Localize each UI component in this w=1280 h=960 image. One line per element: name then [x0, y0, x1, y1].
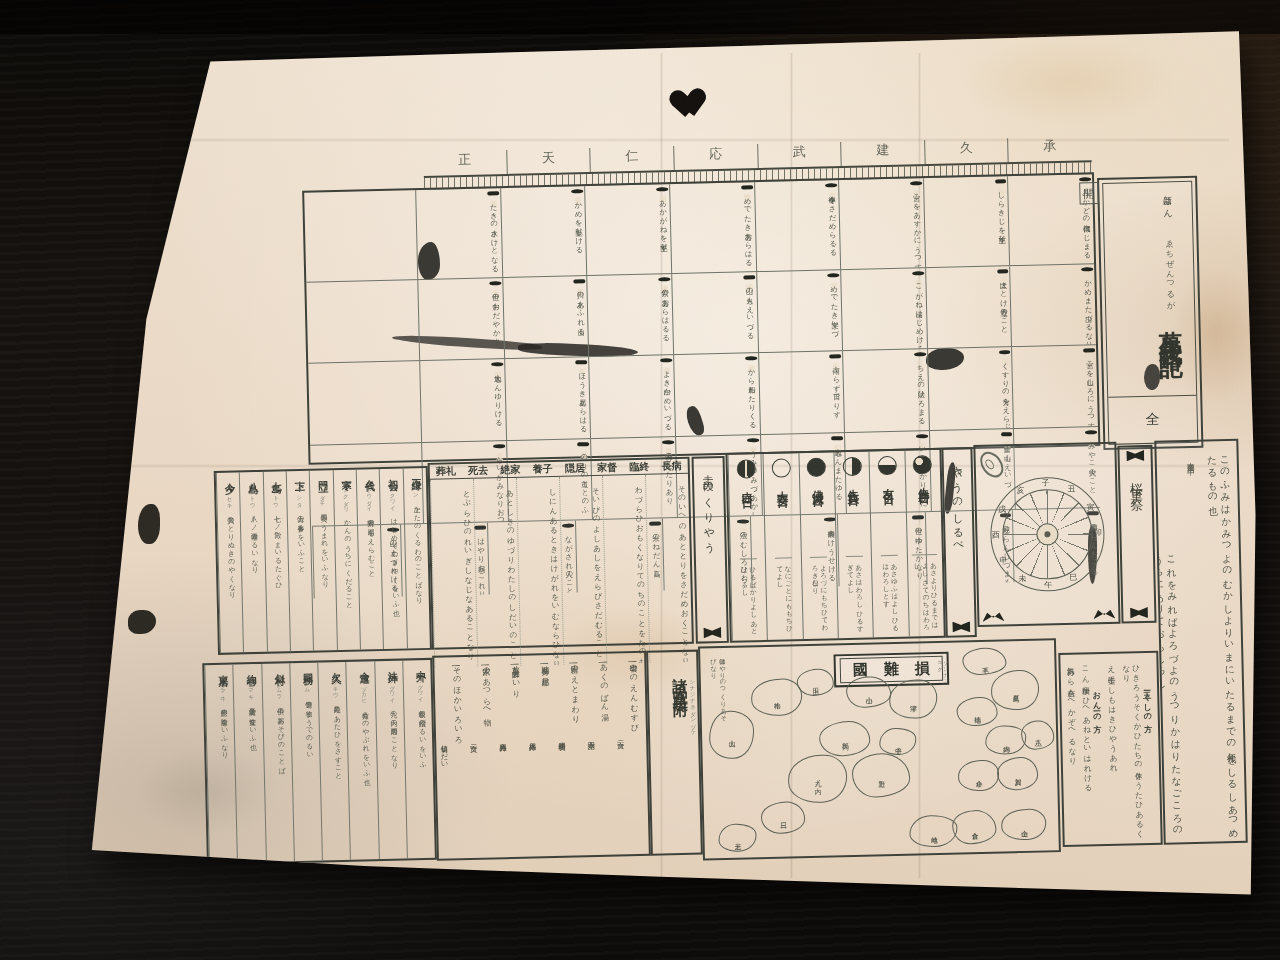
era-seal: 斉衡 [491, 362, 503, 366]
wheel-ring-char: 卯 [1093, 528, 1103, 538]
terms-body-column: あとしきのゆづりわたしのしだいのこと [473, 478, 520, 667]
wheel-ring-char: 丑 [1066, 484, 1076, 494]
wheel-panel: 子丑寅卯辰巳午未申酉戌亥 [973, 442, 1120, 627]
term-body: 筆笥の物まうでのるい [304, 696, 313, 756]
era-header-char: 承 [1008, 136, 1091, 162]
era-header-char: 武 [758, 142, 842, 168]
grid-cell-blank [308, 361, 421, 444]
term-gloss: チウグワイ [417, 668, 424, 699]
grid-cell: 慶雲めでたき雲あらはる [669, 182, 756, 273]
rokuyo-column: 友引日あさゆふはよし ひるはわろしとす [869, 451, 909, 638]
right-column-text: このふみはかみつよのむかしよりいまにいたるまでの年代をしるしあつめたるもの也本道… [1154, 439, 1247, 845]
term-gloss: フエン [413, 476, 419, 495]
term-gloss: シチトウ [273, 479, 280, 504]
glossary-column: 中外チウグワイ新板の摺絵のるいをいふ [402, 660, 435, 859]
term-body: 仕方ゐのやぶれをいふ也 [361, 707, 371, 775]
term-gloss: カネヅカヒ [361, 669, 368, 700]
title-panel: 開 新はん ゑちぜんつるが 萬年代略記 全 [1097, 176, 1203, 450]
era-seal: 朱鳥 [910, 181, 922, 185]
rokuyo-name: 佛滅日 [809, 481, 826, 555]
rokuyo-name: 大安日 [774, 481, 791, 555]
rokuyo-symbol-icon [772, 458, 791, 477]
province-blob: 九ノ内 [788, 754, 848, 804]
province-blob: 夏島 [991, 670, 1040, 711]
wheel-ring-char: 亥 [1015, 486, 1025, 496]
era-seal: 宝字 [827, 273, 839, 277]
price-item: 一そのほかいろいろ値切しだい [436, 661, 470, 855]
corner-crown-icon [982, 608, 1004, 622]
side-note-line: 気行あら六合をへかぞへるなり [1065, 661, 1079, 845]
side-note-block: 玉ーくしの方ひきろうそくかひたちの体をうたひあるくなりえ手金にしもはきひやうあれ… [1058, 651, 1163, 847]
glossary-top: 不縁フエン上かたのくるわのことばなり初会シヨクワイはじめてのきやくをいふ也名代ミ… [214, 466, 432, 655]
grid-cell: 嘉祥よき白かめいづる [588, 355, 675, 438]
province-blob: 金山 [1001, 808, 1046, 840]
era-header-char: 仁 [590, 146, 674, 172]
term-gloss: シヨクワイ [390, 477, 397, 508]
era-seal: 大化 [1079, 177, 1091, 181]
era-header-char: 正 [423, 150, 507, 176]
terms-body-column: しにんあるときはけがれをいむならひなり [516, 477, 563, 666]
rokuyo-symbol-icon [736, 459, 755, 478]
grid-cell-blank [304, 190, 417, 282]
printed-area: 承久建武応仁天正 大化みかどの御代はじまる白雉しらきじを献上す朱鳥宮こをあすかに… [168, 129, 1255, 889]
term-gloss: コクム [304, 671, 310, 690]
junidan-label-column: 十二段のくりやう [692, 456, 729, 644]
province-blob: 郡内 [819, 720, 871, 757]
era-seal: 神護 [743, 275, 755, 279]
rokuyo-desc: あさよりひるまではよし さてのちはわろし [912, 554, 939, 631]
term-head: 上下 [294, 473, 305, 477]
province-blob: 地崎 [909, 815, 958, 848]
grid-cell: 宝亀川の水あふれ出る [502, 276, 588, 358]
rokuyo-desc: あさはわろし ひるすぎてよし [846, 556, 865, 632]
wheel-ring-char: 巳 [1068, 573, 1078, 583]
term-head: 似村 [274, 665, 285, 669]
term-chip: 隠居 [565, 461, 585, 475]
era-seal: 延長 [493, 444, 505, 448]
term-chip: 長病 [661, 459, 681, 473]
right-column-line: 本道四居中 [1185, 450, 1204, 842]
rokuyo-column: 先勝日あさよりひるまではよし さてのちはわろし [904, 450, 944, 637]
rokuyo-name: 友引日 [880, 479, 897, 553]
side-note-line: え手金にしもはきひやうあれ [1106, 660, 1120, 844]
grid-cell: 景雲紫の雲あらはるる [586, 274, 672, 356]
term-body: 夢想の陰変をいふなり [219, 704, 228, 756]
wheel-ring-char: 辰 [1087, 554, 1097, 564]
grid-cell: 延暦宮こを山しろにうつす [1011, 345, 1098, 428]
terms-body-column: そのいへのあととりをさだめおくことなり [645, 474, 692, 663]
bowtie-marker-icon [703, 627, 721, 638]
rokuyo-column: 佛滅日よろづにもちひてわろき日なり [798, 452, 838, 639]
gunsai-label-column: 桜軍祭 [1117, 445, 1156, 624]
era-seal: 勝宝 [912, 271, 924, 275]
term-gloss: コンセキ [226, 481, 233, 506]
price-item: 一家吉のえとまわり墨夜緒切 [554, 658, 588, 852]
price-item: 一大家のあつらへ物二百文 [466, 660, 500, 854]
era-seal: 和銅 [656, 187, 668, 191]
term-body: 九の内の間居のことなり [389, 706, 398, 766]
era-seal: 景雲 [658, 277, 670, 281]
shohin-label-column: 諸品直段附 シナジナネダンヅケ [646, 650, 703, 856]
era-seal: 貞観 [1001, 432, 1013, 436]
term-head: 中外 [415, 662, 426, 666]
terms-body-column: そいびのよしあしをえらびさだむること [559, 476, 606, 665]
terms-block: 長病臨終家督隠居養子絶家死去葬礼 そのいへのあととりをさだめおくことなりわづらひ… [428, 457, 694, 650]
term-head: 初会 [387, 471, 398, 475]
wheel-ring-char: 戌 [997, 505, 1007, 515]
glossary-column: 不縁フエン上かたのくるわのことばなり [402, 468, 430, 648]
term-body: 死足のあたひをさすこと [332, 701, 342, 777]
grid-cell: 霊亀かめを献上しける [500, 186, 587, 277]
province-blob: 綿内 [985, 725, 1027, 755]
foxing-stain [960, 36, 1180, 126]
item-text: 出雲やのえんむすび [628, 657, 639, 728]
era-seal: 仁寿 [576, 360, 588, 364]
title-prefix: 新はん [1162, 188, 1173, 215]
rokuyo-symbol-icon [807, 458, 826, 477]
province-blob: 松本 [750, 678, 802, 717]
province-blob: 谷中 [879, 727, 917, 755]
rokuyo-column: 赤口日ひるばかりよし あとはわろし [728, 454, 768, 641]
era-seal: 元慶 [916, 434, 928, 438]
rokuyo-guide-column: 六やうのしるべ [941, 447, 976, 638]
grid-cell: 勝宝こがね出はじめける [840, 268, 926, 350]
rokuyo-guide-label: 六やうのしるべ [950, 449, 968, 618]
paper-wrap: 承久建武応仁天正 大化みかどの御代はじまる白雉しらきじを献上す朱鳥宮こをあすかに… [80, 26, 1265, 914]
term-gloss: ハチトウ [250, 480, 257, 505]
wheel-ring-char: 子 [1041, 478, 1051, 488]
era-seal: 宝亀 [574, 279, 586, 283]
province-blob: 三日 [760, 802, 805, 834]
province-blob: 小山 [846, 676, 891, 708]
era-header-char: 応 [674, 144, 758, 170]
grid-cell: 斉衡大地しんゆりける [419, 359, 506, 442]
term-body: かんのうちにくだること [343, 515, 353, 606]
era-seal: 延喜 [578, 442, 590, 446]
term-head: 今夕 [224, 474, 235, 478]
rokuyo-symbol-icon [913, 455, 932, 474]
grid-cell: 弘仁ちえの法ひろまる [842, 349, 929, 432]
term-body: はじめてのきやくをいふ也 [389, 514, 399, 606]
term-body: 又貝のとりぬきのやくなり [226, 512, 236, 596]
term-chip: 家督 [597, 460, 617, 474]
terms-body-column: とぶらひのれいぎしなじなあることなり [430, 479, 477, 668]
item-text: そのほかいろいろ [452, 661, 463, 740]
province-label: 九ノ内 [812, 775, 822, 783]
era-seal: 大同 [999, 350, 1011, 354]
wheel-ring-char: 未 [1017, 574, 1027, 584]
grid-cell: 宝字めでたき文字いづ [756, 270, 842, 352]
rokuyo-symbol-icon [842, 457, 861, 476]
term-gloss: ケツキウ [333, 670, 340, 695]
gunsai-label: 桜軍祭 [1126, 464, 1147, 604]
rokuyo-symbol-icon [878, 456, 897, 475]
era-seal: 慶雲 [741, 185, 753, 189]
term-chip: 絶家 [500, 463, 520, 477]
term-head: 金遣 [359, 663, 370, 667]
grid-cell: 白雉しらきじを献上す [923, 176, 1010, 267]
era-seal: 天応 [489, 281, 501, 285]
term-chip: 死去 [468, 463, 488, 477]
term-gloss: カンクダリ [343, 478, 350, 509]
rokuyo-column: 大安日なにごとにももちひてよし [763, 453, 803, 640]
term-gloss: カドダチ [320, 478, 327, 503]
province-blob: 八王 [1020, 720, 1055, 750]
item-text: 八百屋大師まいり [511, 660, 521, 695]
province-blob: 若土 [718, 824, 756, 852]
term-head: 法外 [387, 663, 398, 667]
grid-cell: 養老たきの水さけとなる [415, 188, 502, 279]
era-header-char: 久 [925, 138, 1009, 164]
era-grid: 大化みかどの御代はじまる白雉しらきじを献上す朱鳥宮こをあすかにうつす大宝律令をさ… [302, 172, 1100, 465]
heart-wormhole [675, 88, 712, 121]
rokuyo-desc: なにごとにももちひてよし [775, 557, 794, 633]
item-text: 家吉のえとまわり [569, 658, 579, 720]
corner-crown-icon [1093, 606, 1115, 620]
era-seal: 仁和 [831, 436, 843, 440]
grid-cell: 仁寿ほうき星あらはる [504, 357, 591, 440]
term-body: 子供の郭あそびのことば [276, 702, 286, 770]
term-head: 約巻 [246, 666, 257, 670]
rokuyo-name: 赤口日 [739, 482, 756, 556]
grid-cell: 神護山の火もえいづる [671, 272, 757, 354]
grid-cell: 承和から船わたりくる [673, 353, 760, 436]
volume-label: 全 [1108, 395, 1197, 444]
rokuyo-desc: よろづにもちひてわろき日なり [810, 557, 829, 633]
grid-cell: 和銅あかがねを献上す [584, 184, 671, 275]
term-head: 八島 [248, 474, 259, 478]
term-body: 獨美のうまれをいふなり [319, 509, 329, 585]
province-blob: 宇津 [888, 679, 937, 720]
term-body: 憂実足の性変をいふ也 [248, 703, 257, 739]
era-seal: 天平 [997, 269, 1009, 273]
bowtie-marker-icon [952, 621, 970, 632]
wheel-ring-char: 酉 [991, 530, 1001, 540]
terms-body-column: わづらひおもくなりてのちのことをたのむ [602, 475, 649, 664]
term-body: 上方の客参るをいふこと [296, 510, 305, 570]
era-seal: 大宝 [825, 183, 837, 187]
era-seal: 天安 [1085, 430, 1097, 434]
title-text: 新はん ゑちぜんつるが 萬年代略記 [1103, 182, 1196, 397]
era-seal: 天長 [829, 354, 841, 358]
term-head: 寒下 [341, 472, 352, 476]
wheel-ring-char: 申 [998, 556, 1008, 566]
price-item: 一出雲やのえんむすび二百文 [613, 657, 647, 851]
item-text: あくのばん湯 [599, 658, 609, 709]
term-body: 八トノ過塞のるいなり [249, 511, 258, 570]
rokuyo-panel: 先勝日あさよりひるまではよし さてのちはわろし友引日あさゆふはよし ひるはわろし… [725, 448, 945, 643]
wheel-ring-char: 午 [1043, 580, 1053, 590]
term-chip: 臨終 [629, 460, 649, 474]
province-blob: 大山 [709, 710, 755, 759]
grid-cell: 神亀かめまた出づるなり [1009, 264, 1095, 346]
province-blob: 田上 [796, 669, 834, 697]
paper-sheet: 承久建武応仁天正 大化みかどの御代はじまる白雉しらきじを献上す朱鳥宮こをあすかに… [80, 26, 1265, 914]
term-body: 上かたのくるわのことばなり [412, 501, 422, 601]
shohin-gloss: シナジナネダンヅケ [690, 676, 698, 732]
grid-cell: 天応世の中おだやか也 [417, 278, 503, 360]
wheel-ring-char: 寅 [1085, 503, 1095, 513]
item-text: 地面持を旦那に [540, 659, 550, 684]
junidan-label: 十二段のくりやう [701, 458, 719, 624]
grid-cell: 大同くすりの方をえらぶ [927, 347, 1014, 430]
price-item: 一八百屋大師まいり格外入用 [495, 660, 529, 854]
title-inner: 新はん ゑちぜんつるが 萬年代略記 全 [1102, 181, 1198, 445]
price-item: 一あくのばん湯六十四文 [583, 658, 617, 852]
era-seal: 弘仁 [914, 352, 926, 356]
grid-cell: 大宝律令をさだめらるる [754, 180, 841, 271]
term-gloss: ヤクマキ [248, 672, 255, 697]
province-blob: 下毛 [962, 648, 1007, 676]
ink-blot [128, 610, 156, 634]
terms-body: そのいへのあととりをさだめおくことなりわづらひおもくなりてのちのことをたのむそい… [430, 474, 692, 668]
ink-blot [138, 504, 160, 544]
rokuyo-desc: あさゆふはよし ひるはわろしとす [881, 555, 900, 631]
era-seal: 神亀 [1081, 267, 1093, 271]
era-seal: 養老 [487, 191, 499, 195]
term-gloss: ニタムラ [276, 671, 283, 696]
province-blob: 合倉 [952, 810, 997, 845]
term-head: 国務 [302, 665, 313, 669]
price-item: 一地面持を旦那に格外入用 [525, 659, 559, 853]
term-chip: 葬礼 [436, 464, 456, 478]
rokuyo-name: 先負日 [845, 480, 862, 554]
rokuyo-column: 先負日あさはわろし ひるすぎてよし [833, 452, 873, 639]
term-gloss: ウヘシタ [296, 479, 303, 504]
era-seal: 寛平 [747, 438, 759, 442]
corner-char: 開 [1079, 182, 1099, 204]
title-main: 萬年代略記 [1157, 312, 1185, 343]
map-title-char: 難 [884, 660, 899, 679]
era-seal: 霊亀 [572, 189, 584, 193]
photo-stage: 承久建武応仁天正 大化みかどの御代はじまる白雉しらきじを献上す朱鳥宮こをあすかに… [0, 0, 1280, 960]
province-blob: 上野 [851, 753, 911, 798]
bowtie-marker-icon [1126, 450, 1144, 461]
era-seal: 白雉 [995, 179, 1007, 183]
rokuyo-name: 先勝日 [915, 478, 932, 552]
term-head: 名代 [364, 471, 375, 475]
era-seal: 昌泰 [662, 440, 674, 444]
map-title-furigana: ソンナンコク [937, 658, 950, 683]
term-head: 門立 [317, 472, 328, 476]
province-blob: 加賀 [996, 756, 1038, 790]
bowtie-marker-icon [1130, 607, 1148, 618]
era-header-char: 建 [841, 140, 925, 166]
glossary-bottom: 中外チウグワイ新板の摺絵のるいをいふ法外ハフグワイ九の内の間居のことなり金遣カネ… [202, 658, 437, 865]
term-head: 欠久 [331, 664, 342, 668]
shohin-label: 諸品直段附 [669, 666, 689, 696]
rokuyo-desc: ひるばかりよし あとはわろし [740, 558, 759, 634]
price-panel: 一出雲やのえんむすび二百文一あくのばん湯六十四文一家吉のえとまわり墨夜緒切一地面… [432, 651, 651, 861]
right-column-line: このふみはかみつよのむかしよりいまにいたるまでの年代をしるしあつめたるもの也 [1205, 449, 1240, 841]
title-subtitle: ゑちぜんつるが [1164, 234, 1175, 305]
era-header-char: 天 [507, 148, 591, 174]
map-title-char: 損 [915, 659, 930, 678]
term-chip: 養子 [532, 462, 552, 476]
province-blob: 徳地 [956, 696, 998, 726]
grid-cell-blank [306, 280, 419, 363]
grid-cell: 天長雨ふらず日でりす [758, 351, 845, 434]
term-body: 寳附の名同をえらむこと [366, 514, 375, 574]
item-text: 大家のあつらへ物 [481, 661, 491, 714]
term-gloss: ミヤウダイ [366, 477, 373, 508]
term-head: 東居 [218, 667, 229, 671]
term-gloss: アヅマヰ [220, 673, 227, 698]
grid-cell: 天平大ほとけ造立のこと [925, 266, 1011, 348]
province-blob: 小倉 [958, 759, 1000, 791]
era-seal: 延暦 [1083, 348, 1095, 352]
term-body: 七トノ殿へまいるたぐひ [273, 510, 283, 585]
wheel-handle-icon [975, 447, 1008, 481]
term-gloss: ハフグワイ [389, 669, 396, 700]
term-head: 不縁 [411, 470, 422, 474]
grid-cell: 朱鳥宮こをあすかにうつす [838, 178, 925, 269]
term-body: 新板の摺絵のるいをいふ [417, 705, 426, 765]
term-head: 七島 [271, 473, 282, 477]
map-panel: 御はやりのつくりあそびなり 損難國 ソンナンコク 松本田上大山小山宇津郡内谷中上… [698, 638, 1061, 860]
era-seal: 承和 [745, 356, 757, 360]
era-seal: 嘉祥 [660, 358, 672, 362]
item-price: 値切しだい [437, 662, 452, 855]
